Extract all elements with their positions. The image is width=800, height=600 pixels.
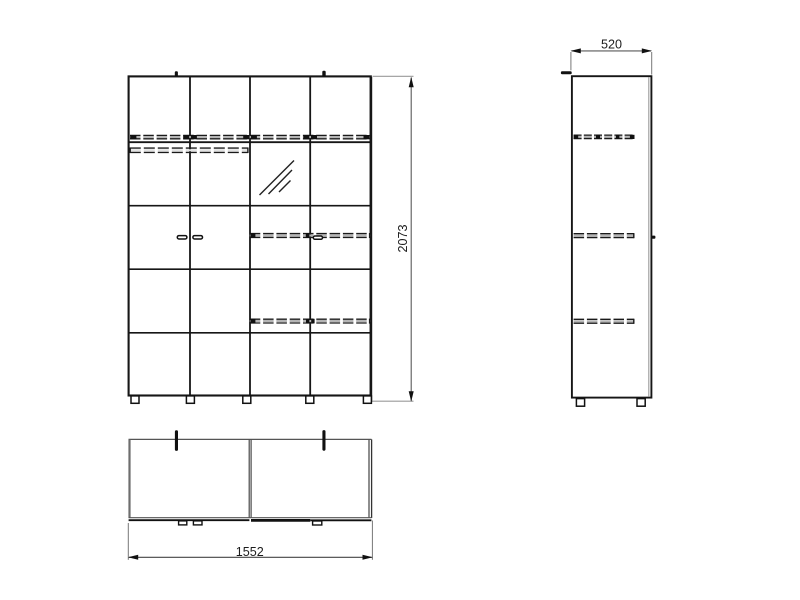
svg-text:520: 520 (601, 38, 622, 52)
svg-text:2073: 2073 (396, 224, 410, 252)
svg-text:1552: 1552 (236, 545, 264, 559)
